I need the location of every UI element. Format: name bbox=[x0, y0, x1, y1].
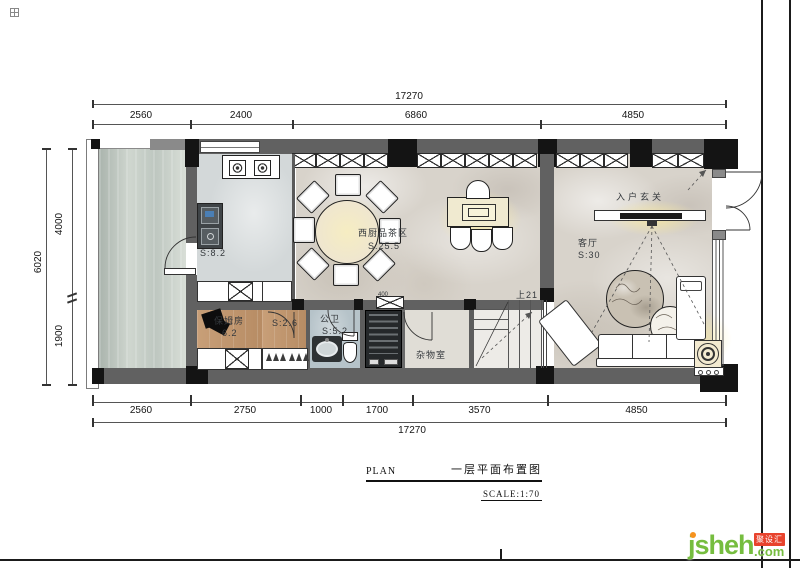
stairs-up-label: 上21 bbox=[516, 290, 538, 300]
stair-tread bbox=[474, 309, 508, 310]
kitchen-counter-divider bbox=[262, 282, 263, 301]
watermark-j-dot bbox=[690, 532, 696, 538]
tv-screen bbox=[620, 213, 682, 219]
faucet-icon bbox=[325, 338, 329, 342]
watermark-suffix: .com bbox=[754, 544, 784, 559]
cabinet-xbox bbox=[292, 153, 316, 168]
cabinet-xbox bbox=[465, 153, 489, 168]
entry-door-jamb-top bbox=[712, 169, 726, 178]
tick bbox=[92, 418, 94, 427]
tick bbox=[92, 100, 94, 108]
entry-hall-label: 入户玄关 bbox=[616, 192, 664, 202]
terrace-floor bbox=[99, 149, 186, 370]
living-room-name: 客厅 bbox=[578, 238, 598, 248]
floor-plan-sheet: 17270 2560 2400 6860 4850 6020 4000 1900… bbox=[0, 0, 800, 568]
bar-stool bbox=[471, 229, 492, 252]
cabinet-xbox bbox=[513, 153, 537, 168]
dim-top-2: 2400 bbox=[190, 110, 292, 122]
tick bbox=[92, 120, 94, 129]
dim-line-top-seg bbox=[92, 124, 726, 125]
faucet-icon bbox=[207, 233, 214, 240]
dim-left-total: 6020 bbox=[33, 245, 45, 279]
plan-title: 一层平面布置图 bbox=[451, 461, 542, 477]
dim-line-bottom-seg bbox=[92, 402, 726, 403]
entry-door-arc-1 bbox=[726, 172, 762, 208]
column-bottom-left bbox=[92, 368, 104, 384]
column-kitchen-corner bbox=[185, 139, 199, 167]
corner-burner-table bbox=[694, 340, 722, 368]
burner-icon bbox=[254, 160, 271, 176]
dim-bottom-5: 3570 bbox=[412, 405, 547, 417]
cabinet-xbox bbox=[580, 153, 604, 168]
column-lower-2 bbox=[354, 299, 363, 310]
daybed bbox=[676, 276, 706, 340]
stair-riser bbox=[519, 300, 520, 368]
terrace-top-wall-chunk bbox=[150, 139, 186, 150]
tea-area-size: S:25.5 bbox=[368, 241, 400, 251]
living-room-size: S:30 bbox=[578, 250, 601, 260]
plan-scale: SCALE:1:70 bbox=[481, 489, 542, 501]
cabinet-xbox bbox=[340, 153, 364, 168]
sink-accent bbox=[205, 211, 214, 217]
tick bbox=[68, 148, 77, 150]
sink-basin-2 bbox=[201, 228, 219, 245]
watermark-logo: jsheh 聚设汇 .com bbox=[688, 530, 796, 564]
wall-tea-living bbox=[540, 154, 554, 302]
terrace-outer-band bbox=[86, 139, 99, 389]
hanger-icon bbox=[280, 353, 286, 361]
cabinet-xbox bbox=[489, 153, 513, 168]
window-mullion bbox=[201, 147, 259, 148]
cabinet-xbox bbox=[228, 282, 253, 301]
hanger-icon bbox=[266, 353, 272, 361]
shelf-knob bbox=[384, 359, 398, 365]
cabinet-xbox bbox=[678, 153, 704, 168]
entry-door-arc-2 bbox=[726, 206, 750, 230]
stair-tread bbox=[474, 319, 508, 320]
tick bbox=[725, 418, 727, 427]
plan-label: PLAN bbox=[366, 466, 396, 477]
dim-top-3: 6860 bbox=[292, 110, 540, 122]
dim-line-left-total bbox=[46, 148, 47, 385]
tick bbox=[42, 384, 51, 386]
kitchen-sink-counter bbox=[197, 203, 223, 249]
dining-chair bbox=[333, 264, 359, 286]
shelf-knob bbox=[369, 359, 379, 365]
tick bbox=[68, 384, 77, 386]
dim-top-total: 17270 bbox=[92, 91, 726, 103]
tick bbox=[725, 100, 727, 108]
dim-top-1: 2560 bbox=[92, 110, 190, 122]
burner-center-dot bbox=[706, 352, 710, 356]
watermark-brand: jsheh bbox=[688, 530, 754, 561]
column-lower-1 bbox=[292, 299, 304, 310]
dining-chair bbox=[293, 217, 315, 243]
dim-misc-400: 400 bbox=[378, 290, 388, 300]
dim-top-4: 4850 bbox=[540, 110, 726, 122]
stair-rail-line bbox=[543, 300, 544, 368]
title-block: PLAN 一层平面布置图 SCALE:1:70 bbox=[366, 461, 542, 502]
corner-tray bbox=[694, 367, 724, 376]
bath-vanity bbox=[312, 336, 342, 362]
terrace-corner-column bbox=[91, 139, 100, 149]
tray-circle bbox=[706, 370, 711, 375]
closet-floor bbox=[262, 310, 306, 350]
column-top-right-corner bbox=[704, 139, 738, 169]
burner-icon bbox=[229, 160, 246, 176]
tick bbox=[540, 120, 542, 129]
wall-terrace-kitchen-lower bbox=[186, 275, 197, 370]
dim-line-bottom-total bbox=[92, 422, 726, 423]
frame-line-right-outer bbox=[789, 0, 791, 568]
cabinet-xbox bbox=[441, 153, 465, 168]
tea-area-name: 西厨品茶区 bbox=[358, 228, 408, 238]
shelf-slats bbox=[369, 314, 398, 354]
cabinet-xbox bbox=[604, 153, 628, 168]
column-bottom-stair bbox=[536, 366, 554, 384]
hanger-icon bbox=[289, 353, 295, 361]
tick bbox=[42, 148, 51, 150]
toilet-tank bbox=[342, 332, 358, 341]
sofa-backrest bbox=[596, 358, 702, 367]
sink-oval bbox=[316, 341, 338, 357]
entry-door-jamb-bottom bbox=[712, 230, 726, 240]
dim-bottom-total: 17270 bbox=[342, 425, 482, 437]
tray-circle bbox=[714, 370, 719, 375]
storage-name: 杂物室 bbox=[416, 350, 446, 360]
kitchen-area-label: S:8.2 bbox=[200, 248, 226, 258]
hanger-icon bbox=[303, 353, 309, 361]
cabinet-xbox bbox=[556, 153, 580, 168]
tray-circle bbox=[698, 370, 703, 375]
stair-tread bbox=[474, 329, 508, 330]
frame-corner-mark bbox=[10, 8, 19, 17]
hanger-icon bbox=[296, 353, 302, 361]
utility-shelf bbox=[365, 310, 402, 368]
dim-bottom-3: 1000 bbox=[300, 405, 342, 417]
dim-bottom-1: 2560 bbox=[92, 405, 190, 417]
dim-line-top-total bbox=[92, 104, 726, 105]
dining-chair bbox=[335, 174, 361, 196]
hanger-icon bbox=[273, 353, 279, 361]
dim-bottom-4: 1700 bbox=[342, 405, 412, 417]
daybed-pillow bbox=[680, 281, 702, 291]
dim-line-left-seg bbox=[72, 148, 73, 385]
dim-left-1: 4000 bbox=[54, 210, 66, 238]
column-top-mid bbox=[388, 139, 417, 167]
stair-rail-line bbox=[546, 300, 547, 368]
column-top-living bbox=[630, 139, 652, 167]
storage-floor bbox=[405, 310, 469, 370]
closet-size: S:2.6 bbox=[272, 318, 298, 328]
stair-riser bbox=[508, 300, 509, 368]
sofa-seat-divider bbox=[632, 335, 633, 359]
bar-stool bbox=[492, 227, 513, 250]
dim-bottom-6: 4850 bbox=[547, 405, 726, 417]
bar-stool-top bbox=[466, 180, 490, 199]
cabinet-xbox bbox=[417, 153, 441, 168]
bath-name: 公卫 bbox=[320, 314, 340, 324]
stair-riser bbox=[541, 300, 542, 368]
frame-tick-bottom bbox=[500, 549, 502, 559]
bar-table bbox=[447, 197, 509, 227]
nanny-room-size: 6.2 bbox=[222, 328, 238, 338]
nanny-room-name: 保姆房 bbox=[214, 316, 244, 326]
cabinet-xbox bbox=[652, 153, 678, 168]
stair-riser bbox=[530, 300, 531, 368]
cabinet-xbox bbox=[364, 153, 388, 168]
tick bbox=[725, 120, 727, 129]
sink-basin bbox=[201, 207, 219, 224]
frame-line-bottom bbox=[0, 559, 800, 561]
sofa-seat-divider bbox=[666, 335, 667, 359]
tick bbox=[292, 120, 294, 129]
wall-shelf-storage bbox=[402, 310, 405, 370]
terrace-door-leaf bbox=[164, 268, 196, 275]
frame-line-right-inner bbox=[761, 0, 763, 568]
tv-mount bbox=[647, 221, 657, 226]
kitchen-window bbox=[200, 141, 260, 153]
bar-stool bbox=[450, 227, 471, 250]
toilet-bowl bbox=[343, 342, 357, 363]
cabinet-xbox bbox=[316, 153, 340, 168]
stove bbox=[222, 155, 280, 179]
tick bbox=[190, 120, 192, 129]
cabinet-xbox bbox=[225, 349, 249, 369]
dim-left-2: 1900 bbox=[54, 322, 66, 350]
dim-bottom-2: 2750 bbox=[190, 405, 300, 417]
bar-table-inset bbox=[468, 208, 489, 217]
